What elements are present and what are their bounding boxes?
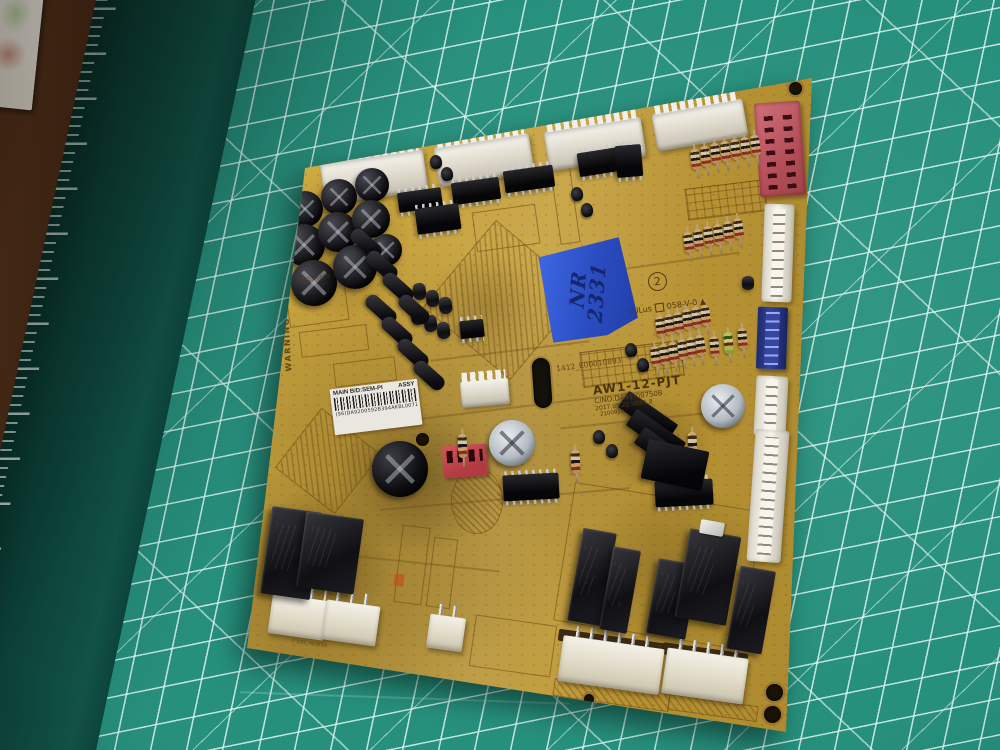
- ic-dip: [451, 177, 502, 205]
- resistor: [700, 304, 712, 326]
- silkscreen-outline: [472, 204, 541, 253]
- connector-white-side: [761, 204, 794, 303]
- transistor: [606, 444, 619, 459]
- handwritten-note: NR 2331: [567, 258, 609, 324]
- silkscreen-outline: [299, 324, 370, 358]
- connector-white-side: [753, 375, 788, 437]
- connector-white: [460, 378, 510, 408]
- small-capacitor: [438, 296, 453, 315]
- silkscreen-outline: [469, 615, 557, 678]
- connector-white-side: [746, 429, 789, 563]
- board-slot: [531, 357, 552, 408]
- silkscreen-grid: [684, 179, 767, 221]
- connector-blue: [756, 306, 788, 369]
- ic-soic: [615, 144, 644, 178]
- transistor: [570, 186, 584, 202]
- silkscreen-mark: [393, 573, 405, 586]
- electrolytic-capacitor: [321, 179, 357, 215]
- mounting-hole: [764, 706, 781, 723]
- connector-header: [321, 599, 380, 646]
- photo-of-pcb-on-cutting-mat: NR 2331 MAIN B/D:SEM-PI ASSY (96)DA92005…: [0, 0, 1000, 750]
- resistor: [570, 450, 580, 474]
- connector-red-idc: [754, 101, 806, 198]
- mounting-hole: [416, 433, 429, 446]
- transistor: [580, 202, 594, 218]
- cert-box-icon: [654, 303, 664, 313]
- small-capacitor: [436, 321, 451, 340]
- electrolytic-capacitor: [287, 191, 323, 227]
- electrolytic-capacitor: [489, 420, 535, 466]
- connector-header: [267, 593, 328, 640]
- ic-dip: [503, 165, 556, 194]
- ic-dip: [502, 473, 559, 502]
- pcb-board: NR 2331 MAIN B/D:SEM-PI ASSY (96)DA92005…: [0, 0, 1000, 750]
- resistor: [723, 332, 734, 355]
- small-capacitor: [412, 282, 427, 301]
- resistor: [457, 434, 467, 458]
- relay: [296, 511, 364, 594]
- mounting-hole: [789, 82, 802, 95]
- resistor: [709, 336, 720, 358]
- mounting-hole: [766, 684, 783, 701]
- transistor: [593, 430, 606, 445]
- ic-soic: [459, 319, 485, 339]
- resistor: [695, 334, 707, 356]
- small-capacitor: [425, 289, 440, 308]
- ic-soic: [414, 203, 461, 235]
- connector-header: [426, 614, 466, 653]
- component-layer: [0, 0, 1000, 750]
- electrolytic-capacitor: [701, 384, 745, 428]
- electrolytic-capacitor: [372, 441, 428, 497]
- resistor: [733, 217, 745, 239]
- mounting-hole: [584, 694, 594, 704]
- resistor: [737, 328, 748, 350]
- pcb-board-wrapper: NR 2331 MAIN B/D:SEM-PI ASSY (96)DA92005…: [0, 0, 1000, 750]
- electrolytic-capacitor: [355, 168, 389, 202]
- copper-trace: [620, 252, 739, 271]
- small-capacitor: [742, 276, 754, 290]
- electrolytic-capacitor: [291, 260, 337, 306]
